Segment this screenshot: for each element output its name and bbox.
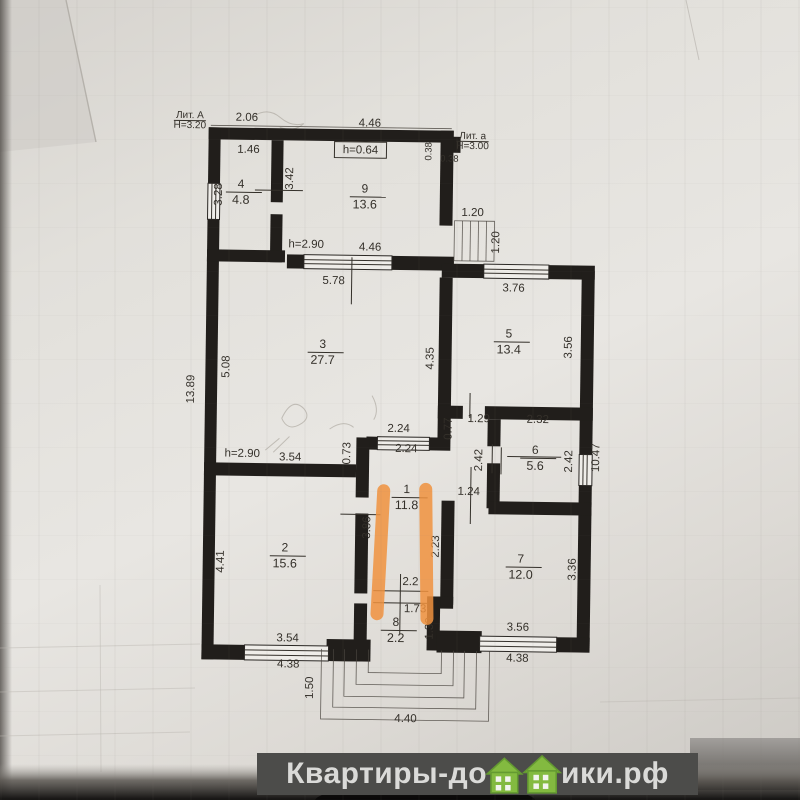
dim-label: 3.36 xyxy=(566,558,578,581)
dim-label: 2.24 xyxy=(387,423,410,435)
dim-label: 5.78 xyxy=(322,275,345,287)
room-number: 1 xyxy=(403,482,410,496)
dim-label: 3.86 xyxy=(361,516,373,539)
dim-label: 2.24 xyxy=(395,443,418,455)
plan-group: 44.8913.6327.7513.465.6111.8215.6712.082… xyxy=(165,110,607,728)
dim-label: 5.08 xyxy=(220,355,232,378)
dim-label: 10.47 xyxy=(590,443,602,472)
dim-label: 2.06 xyxy=(236,112,259,124)
room-area: 5.6 xyxy=(526,459,544,473)
window xyxy=(484,264,549,279)
dim-label: 1.46 xyxy=(237,144,260,156)
dim-label: 4.40 xyxy=(394,713,417,725)
dim-label: h=2.90 xyxy=(224,448,260,460)
orange-highlight-stroke xyxy=(377,491,384,614)
room-number: 3 xyxy=(319,337,326,351)
dim-label: 0.38 xyxy=(423,142,434,161)
pencil-marks xyxy=(249,112,380,454)
dim-label: 0.38 xyxy=(440,154,459,165)
room-label: 712.0 xyxy=(505,551,541,581)
dim-label: 2.32 xyxy=(526,414,549,426)
room-label: 327.7 xyxy=(307,337,343,367)
dim-label: 1.20 xyxy=(490,231,502,254)
window xyxy=(480,636,557,652)
dim-label: Н=3.20 xyxy=(173,120,206,131)
orange-highlight-stroke xyxy=(424,489,429,618)
dim-label: 3.76 xyxy=(502,282,525,294)
walls-layer xyxy=(201,127,596,664)
dim-label: Н=3.00 xyxy=(456,141,489,152)
room-area: 12.0 xyxy=(508,568,533,582)
watermark-bar: Квартиры-до ики.рф xyxy=(257,753,698,795)
watermark-text-right: ики.рф xyxy=(561,757,669,791)
photo-artifacts xyxy=(0,0,800,800)
dim-label: 2.42 xyxy=(563,450,575,473)
dim-label: 3.56 xyxy=(563,336,575,359)
dim-label: h=0.64 xyxy=(343,144,379,157)
dim-label: 1.20 xyxy=(461,207,484,219)
room-label: 215.6 xyxy=(270,540,306,570)
room-number: 2 xyxy=(281,540,288,554)
floorplan-photo: 44.8913.6327.7513.465.6111.8215.6712.082… xyxy=(0,0,800,800)
dim-label: 2.42 xyxy=(473,449,485,472)
dim-label: 1.50 xyxy=(304,676,316,699)
floorplan-svg: 44.8913.6327.7513.465.6111.8215.6712.082… xyxy=(0,0,800,800)
dim-label: 4.38 xyxy=(506,653,529,665)
room-area: 15.6 xyxy=(272,556,297,570)
dim-label: 0.77 xyxy=(442,417,454,440)
room-number: 8 xyxy=(392,615,399,629)
dim-label: 3.54 xyxy=(276,632,299,644)
dim-label: 3.28 xyxy=(213,183,225,206)
room-number: 7 xyxy=(517,552,524,566)
dim-label: 4.46 xyxy=(359,241,382,253)
room-number: 5 xyxy=(505,326,512,340)
room-area: 11.8 xyxy=(395,498,419,512)
room-number: 9 xyxy=(362,181,369,195)
dim-label: 1.24 xyxy=(457,486,480,498)
dim-label: 13.89 xyxy=(185,375,197,404)
watermark-text-left: Квартиры-до xyxy=(286,757,487,791)
dim-label: h=2.90 xyxy=(288,238,324,250)
room-label: 913.6 xyxy=(350,181,386,211)
room-area: 13.6 xyxy=(352,197,377,211)
room-label: 82.2 xyxy=(381,615,417,645)
room-area: 4.8 xyxy=(232,193,250,207)
dim-label: 3.54 xyxy=(279,451,302,463)
room-label: 513.4 xyxy=(494,326,530,356)
dim-label: 4.38 xyxy=(277,658,300,670)
dim-label: 1.29 xyxy=(467,413,490,425)
stairs xyxy=(454,221,495,262)
room-area: 27.7 xyxy=(310,353,335,367)
dim-label: 0.73 xyxy=(341,442,353,465)
houses-icon xyxy=(484,752,564,796)
dim-label: 4.35 xyxy=(424,347,436,370)
room-area: 13.4 xyxy=(496,342,521,356)
dim-label: 3.56 xyxy=(507,622,530,634)
room-label: 44.8 xyxy=(226,177,262,207)
room-number: 6 xyxy=(532,443,539,457)
dim-label: 2.2 xyxy=(402,576,418,588)
room-number: 4 xyxy=(238,177,245,191)
room-label: 65.6 xyxy=(520,443,556,473)
dim-label: 4.41 xyxy=(215,550,227,573)
dim-label: 3.42 xyxy=(284,167,296,190)
room-area: 2.2 xyxy=(387,631,405,645)
dim-label: 4.46 xyxy=(359,117,382,129)
window xyxy=(304,255,392,270)
